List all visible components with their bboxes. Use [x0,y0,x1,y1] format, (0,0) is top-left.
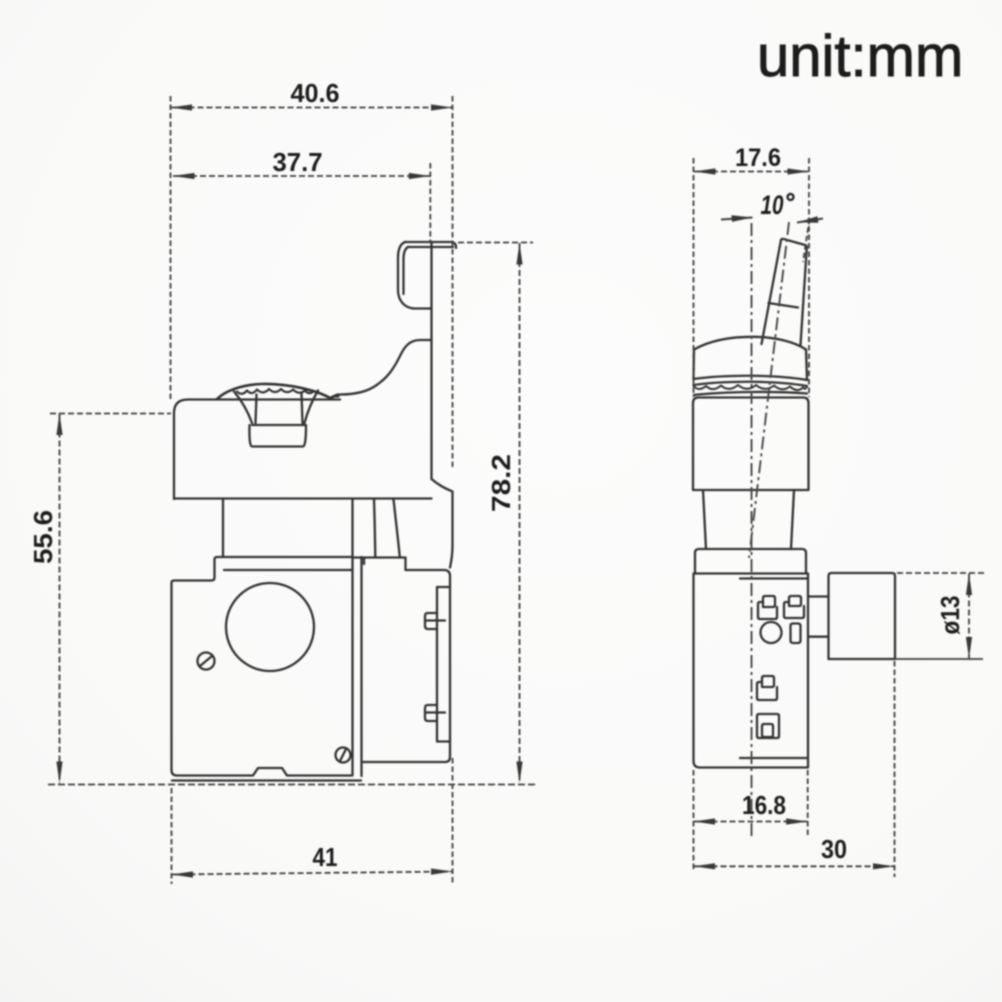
svg-text:10: 10 [761,190,784,220]
svg-text:41: 41 [313,842,338,872]
svg-text:37.7: 37.7 [273,147,323,177]
svg-text:16.8: 16.8 [742,790,786,820]
svg-text:17.6: 17.6 [735,144,781,172]
svg-text:unit:mm: unit:mm [757,24,963,89]
svg-text:30: 30 [821,834,847,864]
svg-text:55.6: 55.6 [28,510,58,564]
svg-text:40.6: 40.6 [291,78,340,108]
svg-text:ø13: ø13 [935,596,965,635]
svg-text:78.2: 78.2 [486,454,516,512]
